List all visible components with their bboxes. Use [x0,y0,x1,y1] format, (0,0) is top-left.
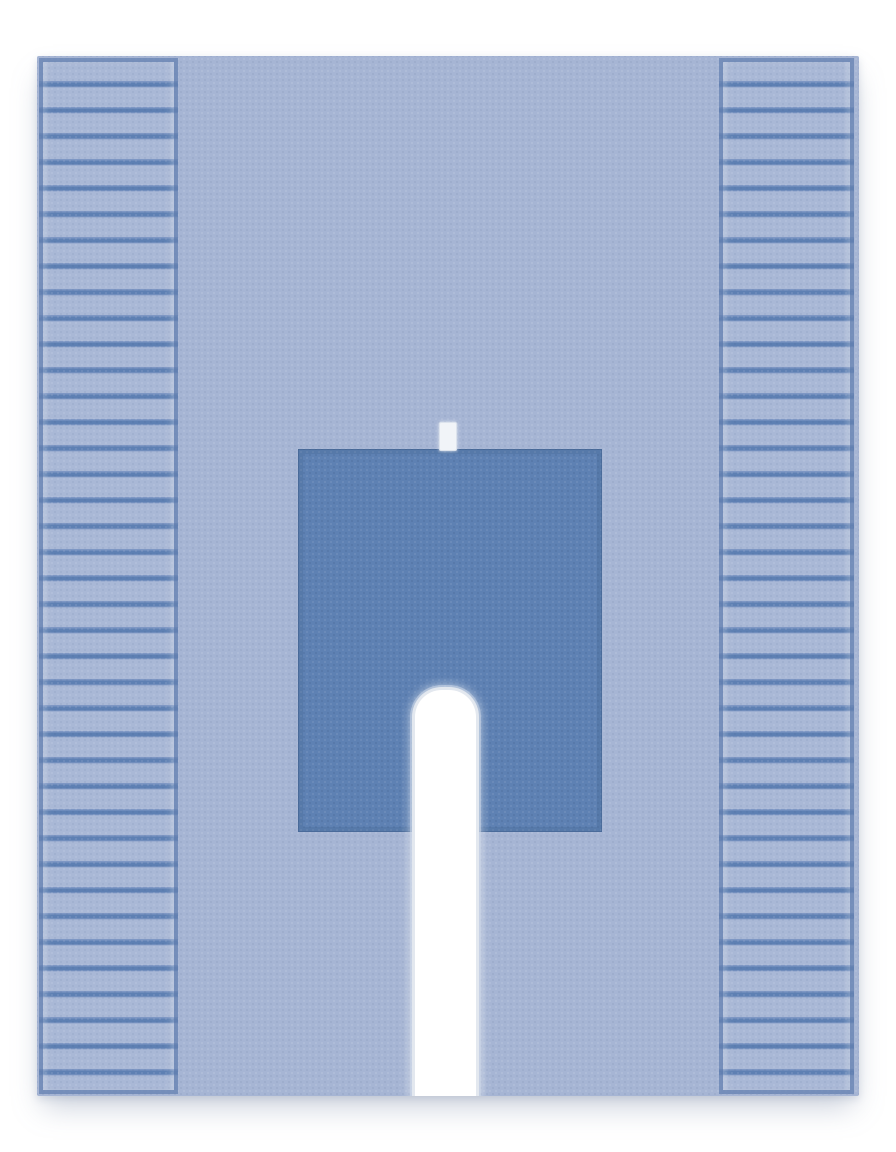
pleated-fold-panel-right [719,58,854,1094]
surgical-drape [37,56,859,1096]
adhesive-tab [439,422,457,451]
u-shaped-fenestration-slot [412,687,479,1096]
pleated-fold-panel-left [39,58,178,1094]
product-photo [0,0,896,1152]
